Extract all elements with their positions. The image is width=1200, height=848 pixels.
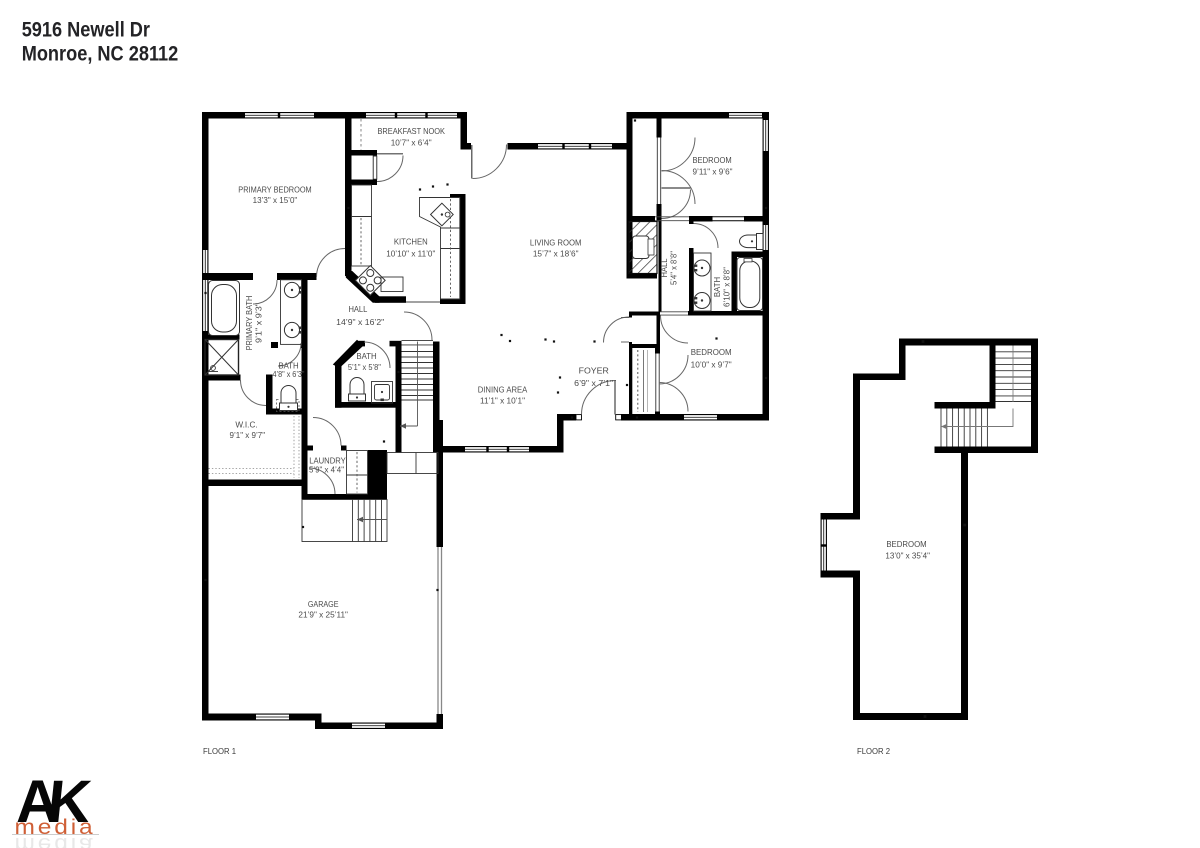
svg-text:9’11" x 9’6": 9’11" x 9’6": [693, 168, 733, 177]
svg-text:13’3" x 15’0": 13’3" x 15’0": [253, 196, 298, 205]
svg-text:5’4" x 8’8": 5’4" x 8’8": [670, 251, 679, 285]
svg-text:15’7" x 18’6": 15’7" x 18’6": [533, 249, 579, 258]
svg-text:4’8" x 6’3": 4’8" x 6’3": [273, 370, 305, 379]
svg-text:HALL: HALL: [660, 258, 669, 277]
svg-text:FLOOR 1: FLOOR 1: [203, 746, 236, 756]
svg-text:media: media: [15, 833, 96, 848]
svg-text:5’9" x 4’4": 5’9" x 4’4": [309, 465, 344, 474]
svg-text:HALL: HALL: [348, 305, 367, 314]
svg-text:9’1" x 9’7": 9’1" x 9’7": [230, 431, 266, 440]
svg-text:BATH: BATH: [713, 277, 722, 298]
svg-text:BATH: BATH: [356, 352, 377, 361]
svg-text:21’9" x 25’11": 21’9" x 25’11": [298, 611, 348, 620]
svg-text:5916 Newell Dr: 5916 Newell Dr: [22, 17, 151, 41]
svg-text:Monroe, NC 28112: Monroe, NC 28112: [22, 42, 179, 66]
svg-text:5’1" x 5’8": 5’1" x 5’8": [348, 363, 381, 372]
svg-text:BEDROOM: BEDROOM: [691, 348, 732, 357]
svg-text:GARAGE: GARAGE: [308, 600, 339, 609]
svg-text:6’10" x 8’8": 6’10" x 8’8": [722, 267, 731, 307]
svg-text:10’0" x 9’7": 10’0" x 9’7": [691, 360, 732, 369]
svg-text:13’0" x 35’4": 13’0" x 35’4": [885, 552, 930, 561]
svg-text:DINING AREA: DINING AREA: [478, 385, 528, 394]
svg-text:10’7" x 6’4": 10’7" x 6’4": [391, 138, 432, 147]
svg-text:14’9" x 16’2": 14’9" x 16’2": [336, 318, 384, 327]
svg-text:BEDROOM: BEDROOM: [886, 540, 927, 549]
svg-text:W.I.C.: W.I.C.: [235, 421, 257, 430]
svg-text:6’9" x 7’1": 6’9" x 7’1": [574, 379, 613, 388]
svg-text:11’1" x 10’1": 11’1" x 10’1": [480, 396, 525, 405]
svg-text:10’10" x 11’0": 10’10" x 11’0": [386, 250, 435, 259]
svg-text:BEDROOM: BEDROOM: [693, 156, 733, 165]
svg-text:PRIMARY BEDROOM: PRIMARY BEDROOM: [238, 185, 312, 194]
svg-text:LAUNDRY: LAUNDRY: [309, 456, 346, 465]
svg-text:FOYER: FOYER: [579, 366, 609, 375]
svg-text:KITCHEN: KITCHEN: [394, 238, 428, 247]
svg-text:9’1" x 9’3": 9’1" x 9’3": [254, 303, 263, 343]
svg-text:BREAKFAST NOOK: BREAKFAST NOOK: [377, 127, 445, 136]
svg-text:LIVING ROOM: LIVING ROOM: [530, 239, 582, 248]
svg-text:PRIMARY BATH: PRIMARY BATH: [245, 295, 254, 350]
svg-text:FLOOR 2: FLOOR 2: [857, 746, 890, 756]
